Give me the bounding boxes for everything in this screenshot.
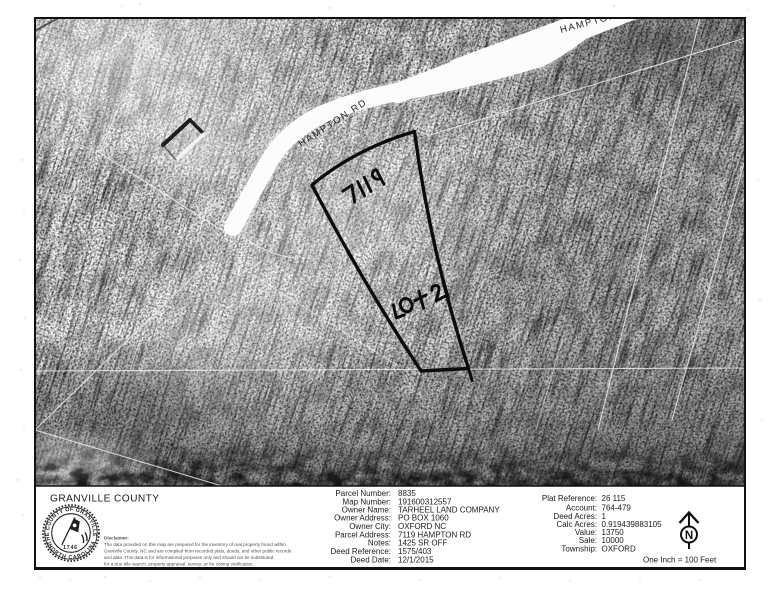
svg-text:for a true title search, prope: for a true title search, property apprai… [104, 562, 254, 567]
svg-text:26 115: 26 115 [602, 494, 626, 503]
svg-text:12/1/2015: 12/1/2015 [398, 555, 434, 564]
svg-text:One Inch = 100 Feet: One Inch = 100 Feet [643, 556, 717, 565]
svg-text:764-479: 764-479 [602, 503, 632, 512]
svg-text:OXFORD: OXFORD [602, 544, 636, 553]
svg-text:Disclaimer:: Disclaimer: [104, 536, 129, 541]
svg-text:Granville County, NC and are c: Granville County, NC and are compiled fr… [104, 549, 292, 554]
svg-text:Deed Date:: Deed Date: [351, 555, 391, 564]
svg-text:and data. This data is for in: and data. This data is for informational… [104, 555, 274, 560]
svg-text:1746: 1746 [63, 545, 78, 551]
svg-text:Township:: Township: [561, 544, 597, 553]
svg-text:The data provided on this map: The data provided on this map are prepar… [104, 542, 286, 547]
svg-text:N: N [685, 530, 693, 542]
svg-text:GRANVILLE COUNTY: GRANVILLE COUNTY [50, 494, 159, 505]
svg-text:Plat Reference:: Plat Reference: [542, 494, 597, 503]
